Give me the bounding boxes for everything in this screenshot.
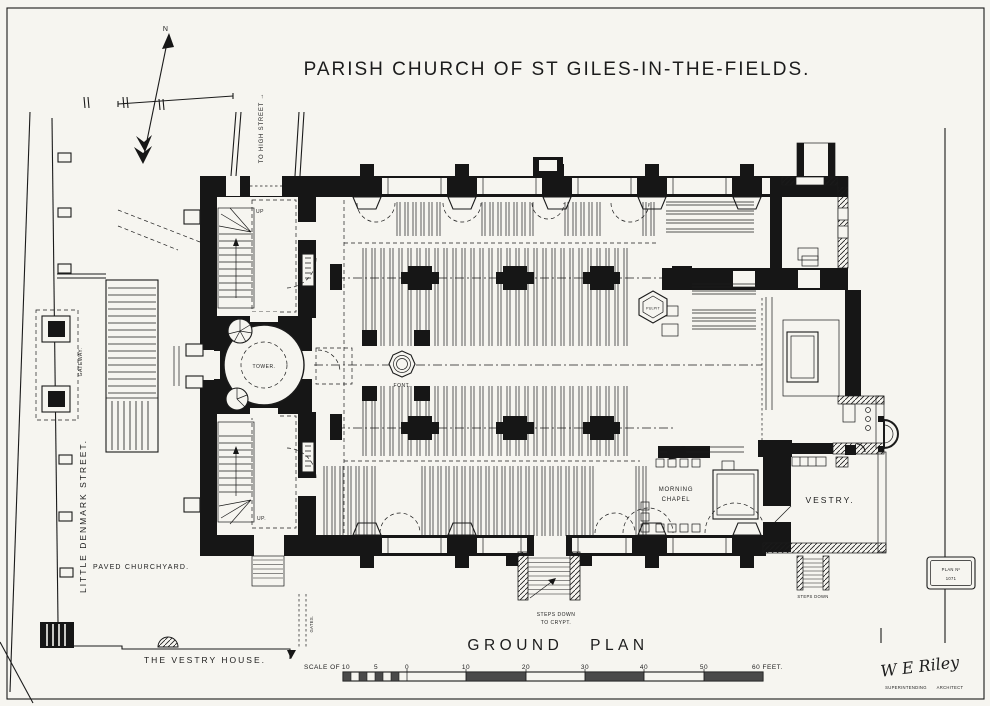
ground-plan-drawing: PARISH CHURCH OF ST GILES-IN-THE-FIELDS.… <box>0 0 990 706</box>
west-door-arc <box>318 350 340 372</box>
scale-bar: SCALE OF 10 5 0 10 20 30 40 50 60 FEET. <box>304 664 783 681</box>
churchyard: PAVED CHURCHYARD. THE VESTRY HOUSE. GATE… <box>57 210 314 665</box>
stamp: PLAN Nº 1071 <box>927 557 975 589</box>
compass-n-label: N <box>163 26 169 33</box>
churchyard-steps <box>106 280 158 452</box>
wall-terminal <box>40 622 74 648</box>
scale-prefix: SCALE OF <box>304 664 340 671</box>
churchyard-wall <box>52 118 58 622</box>
sw-round-stair-icon <box>226 388 248 410</box>
plan-sheet: PARISH CHURCH OF ST GILES-IN-THE-FIELDS.… <box>0 0 990 706</box>
crypt-steps-label-1: STEPS DOWN <box>537 612 576 618</box>
scale-tick-5: 30 <box>581 664 589 671</box>
page-title: PARISH CHURCH OF ST GILES-IN-THE-FIELDS. <box>304 59 811 80</box>
west-end: UP UP. TOWER. <box>210 197 352 586</box>
north-aisle-pews <box>397 202 654 236</box>
gateway-label: GATEWAY. <box>78 348 84 377</box>
nave: FONT. <box>314 200 762 536</box>
pulpit-symbol: PULPIT <box>639 291 667 323</box>
nave-pews-north-block <box>363 248 627 346</box>
high-street-path: TO HIGH STREET → <box>231 93 304 176</box>
south-aisle-pews <box>324 466 646 536</box>
west-porch <box>174 344 203 388</box>
vestry-house-label: THE VESTRY HOUSE. <box>144 655 266 665</box>
sheet-border <box>7 8 984 699</box>
morning-chapel-label-1: MORNING <box>659 487 694 493</box>
gateway: GATEWAY. <box>36 310 84 420</box>
sw-external-steps <box>252 556 284 586</box>
architect-signature: W E Riley <box>879 652 961 681</box>
vestry-steps <box>797 556 829 590</box>
arcade-lines <box>336 278 674 428</box>
paved-churchyard-label: PAVED CHURCHYARD. <box>93 564 189 571</box>
gates-label: GATES. <box>309 616 314 633</box>
to-high-street-label: TO HIGH STREET → <box>259 93 265 164</box>
tower: TOWER. <box>210 312 312 418</box>
scale-tick-3: 10 <box>462 664 470 671</box>
scale-tick-1: 5 <box>374 664 378 671</box>
stamp-line-1: PLAN Nº <box>942 567 961 572</box>
chancel-stalls <box>662 284 756 336</box>
sw-gallery-stair-dashed <box>252 416 296 528</box>
wall-posts <box>58 153 73 577</box>
scale-tick-2: 0 <box>405 664 409 671</box>
altar <box>787 332 818 382</box>
signature-role-2: ARCHITECT <box>937 685 964 690</box>
east-end: PULPIT MORNING <box>623 143 898 599</box>
pulpit-label: PULPIT <box>646 307 660 311</box>
crypt-steps-label-2: TO CRYPT. <box>541 620 571 626</box>
tower-label: TOWER. <box>253 364 276 370</box>
nave-piers <box>330 264 620 440</box>
signature-role-1: SUPERINTENDING <box>885 685 927 690</box>
vestry-label: VESTRY. <box>805 495 854 505</box>
scale-tick-0: 10 <box>342 664 350 671</box>
scale-tick-4: 20 <box>522 664 530 671</box>
north-aisle-arcs <box>357 203 649 222</box>
scale-unit: 60 FEET. <box>752 664 783 671</box>
morning-chapel-label-2: CHAPEL <box>662 497 691 503</box>
vestry: VESTRY. <box>763 440 886 553</box>
up-sw-label: UP. <box>257 516 266 522</box>
street-left: GATEWAY. LITTLE DENMARK STREET. <box>0 112 88 703</box>
font-symbol <box>389 351 415 377</box>
scale-tick-7: 50 <box>700 664 708 671</box>
north-porch <box>533 157 563 177</box>
vestibule-dashed <box>316 348 352 384</box>
south-aisle-arcs <box>380 513 635 533</box>
nw-gallery-stair-dashed <box>252 200 296 312</box>
nave-pews-south-block <box>363 386 627 456</box>
street-name-label: LITTLE DENMARK STREET. <box>78 439 88 593</box>
stamp-line-2: 1071 <box>946 576 957 581</box>
scale-tick-6: 40 <box>640 664 648 671</box>
chapel-organ <box>713 470 758 519</box>
nw-spiral-stair-icon <box>228 319 252 343</box>
vestry-steps-label: STEPS DOWN <box>797 594 828 599</box>
crypt-steps <box>506 552 592 600</box>
southwest-stair <box>218 422 254 524</box>
north-arrow-icon: N <box>118 26 233 164</box>
ground-plan-title: GROUND PLAN <box>467 637 648 654</box>
signature-block: W E Riley SUPERINTENDING ARCHITECT <box>879 652 963 690</box>
font-label: FONT. <box>394 383 411 389</box>
northeast-room <box>770 143 848 268</box>
chapel-chairs <box>641 459 700 532</box>
gates-path: GATES. <box>299 594 314 648</box>
northwest-stair <box>218 208 254 308</box>
kerb-ticks <box>84 97 164 110</box>
up-nw-label: UP <box>256 209 264 215</box>
